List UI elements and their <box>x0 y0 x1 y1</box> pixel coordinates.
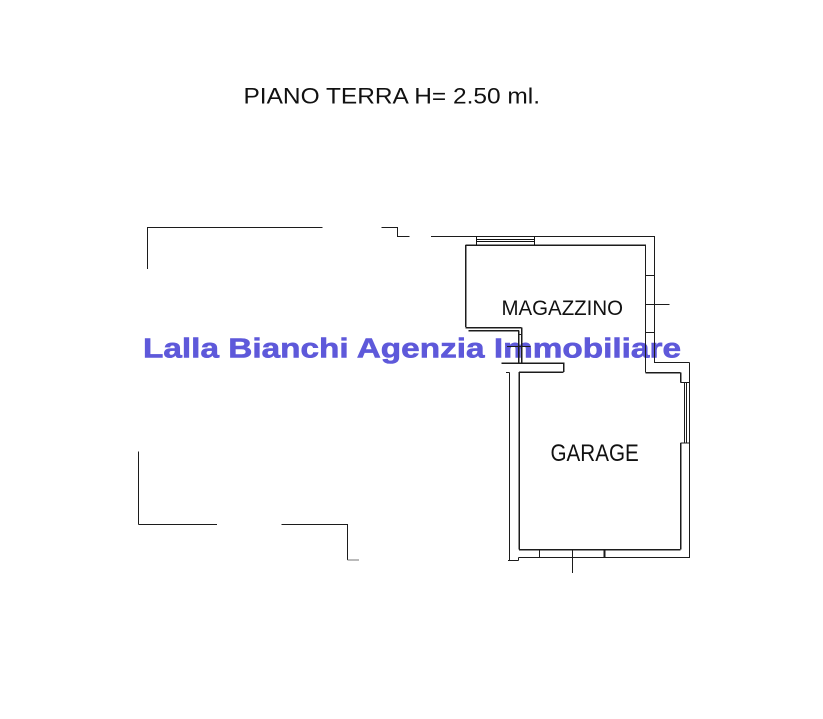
svg-text:Lalla Bianchi Agenzia Immobili: Lalla Bianchi Agenzia Immobiliare <box>143 333 681 364</box>
svg-text:PIANO TERRA H= 2.50 ml.: PIANO TERRA H= 2.50 ml. <box>244 84 541 109</box>
svg-text:GARAGE: GARAGE <box>551 441 639 467</box>
svg-text:MAGAZZINO: MAGAZZINO <box>502 297 624 320</box>
